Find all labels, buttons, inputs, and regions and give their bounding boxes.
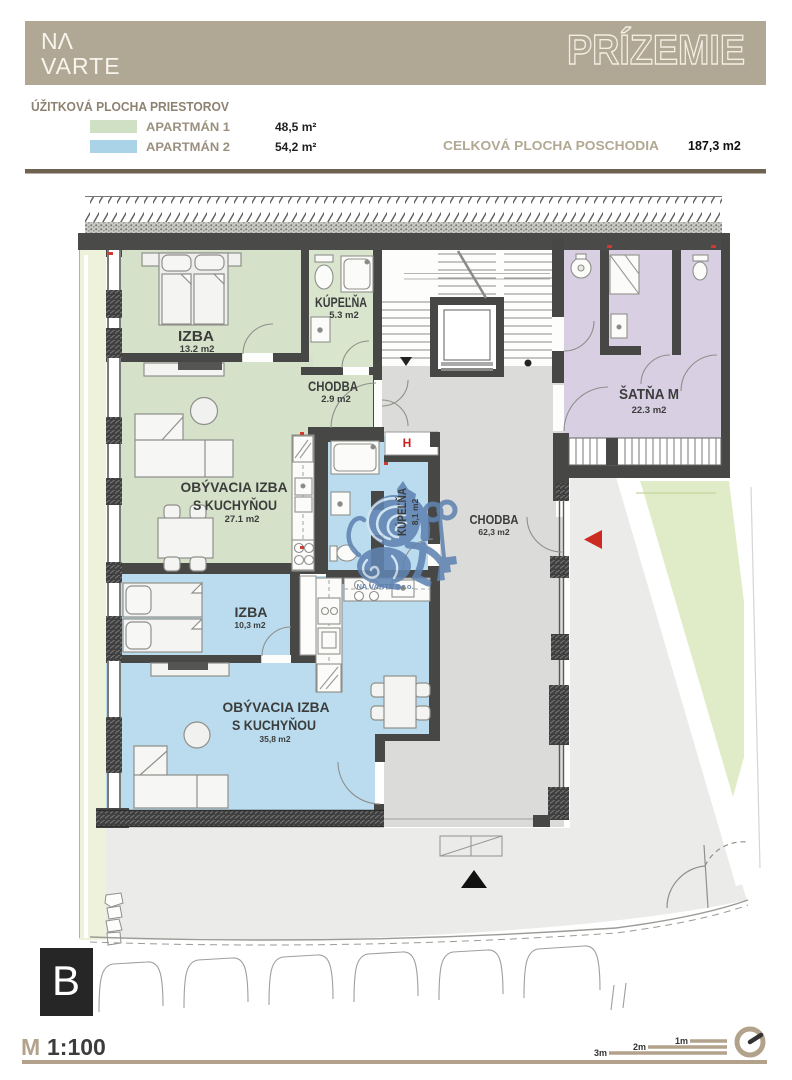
svg-text:CHODBA: CHODBA [470,512,520,527]
svg-text:48,5 m²: 48,5 m² [275,120,316,134]
svg-text:CELKOVÁ PLOCHA POSCHODIA: CELKOVÁ PLOCHA POSCHODIA [443,138,659,153]
svg-text:ŠATŇA M: ŠATŇA M [619,385,679,403]
svg-text:35,8 m2: 35,8 m2 [259,734,290,744]
svg-text:OBÝVACIA IZBA: OBÝVACIA IZBA [223,698,330,715]
svg-text:S KUCHYŇOU: S KUCHYŇOU [232,716,316,733]
svg-text:NA VARTE s.r.o.: NA VARTE s.r.o. [356,582,413,591]
svg-text:VARTE: VARTE [41,53,121,79]
svg-text:5.3 m2: 5.3 m2 [329,310,359,321]
svg-text:3m: 3m [594,1048,607,1058]
svg-text:KÚPEĽŇA: KÚPEĽŇA [315,293,367,310]
svg-text:1m: 1m [675,1036,688,1046]
svg-text:APARTMÁN 2: APARTMÁN 2 [146,141,230,154]
svg-text:22.3 m2: 22.3 m2 [632,405,667,416]
svg-text:M: M [21,1034,40,1060]
svg-text:KÚPEĽŇA: KÚPEĽŇA [394,488,409,536]
svg-text:27.1 m2: 27.1 m2 [225,514,260,525]
svg-text:PRÍZEMIE: PRÍZEMIE [567,26,745,73]
svg-text:187,3 m2: 187,3 m2 [688,139,741,153]
svg-text:NΛ: NΛ [41,28,74,54]
svg-text:62,3 m2: 62,3 m2 [478,527,509,537]
svg-text:B: B [52,957,80,1004]
svg-text:10,3 m2: 10,3 m2 [234,620,265,630]
svg-text:54,2 m²: 54,2 m² [275,140,316,154]
svg-text:8,1 m2: 8,1 m2 [410,498,420,525]
svg-text:IZBA: IZBA [235,604,268,620]
svg-text:CHODBA: CHODBA [308,378,358,394]
svg-text:IZBA: IZBA [178,328,214,345]
svg-text:S KUCHYŇOU: S KUCHYŇOU [193,496,277,513]
svg-text:H: H [403,436,412,450]
svg-text:APARTMÁN 1: APARTMÁN 1 [146,121,231,134]
svg-text:ÚŽITKOVÁ PLOCHA PRIESTOROV: ÚŽITKOVÁ PLOCHA PRIESTOROV [31,99,230,114]
svg-text:13.2 m2: 13.2 m2 [180,344,215,355]
svg-text:OBÝVACIA IZBA: OBÝVACIA IZBA [181,478,288,495]
svg-text:2.9 m2: 2.9 m2 [321,394,351,405]
svg-text:1:100: 1:100 [47,1034,106,1060]
svg-text:2m: 2m [633,1042,646,1052]
